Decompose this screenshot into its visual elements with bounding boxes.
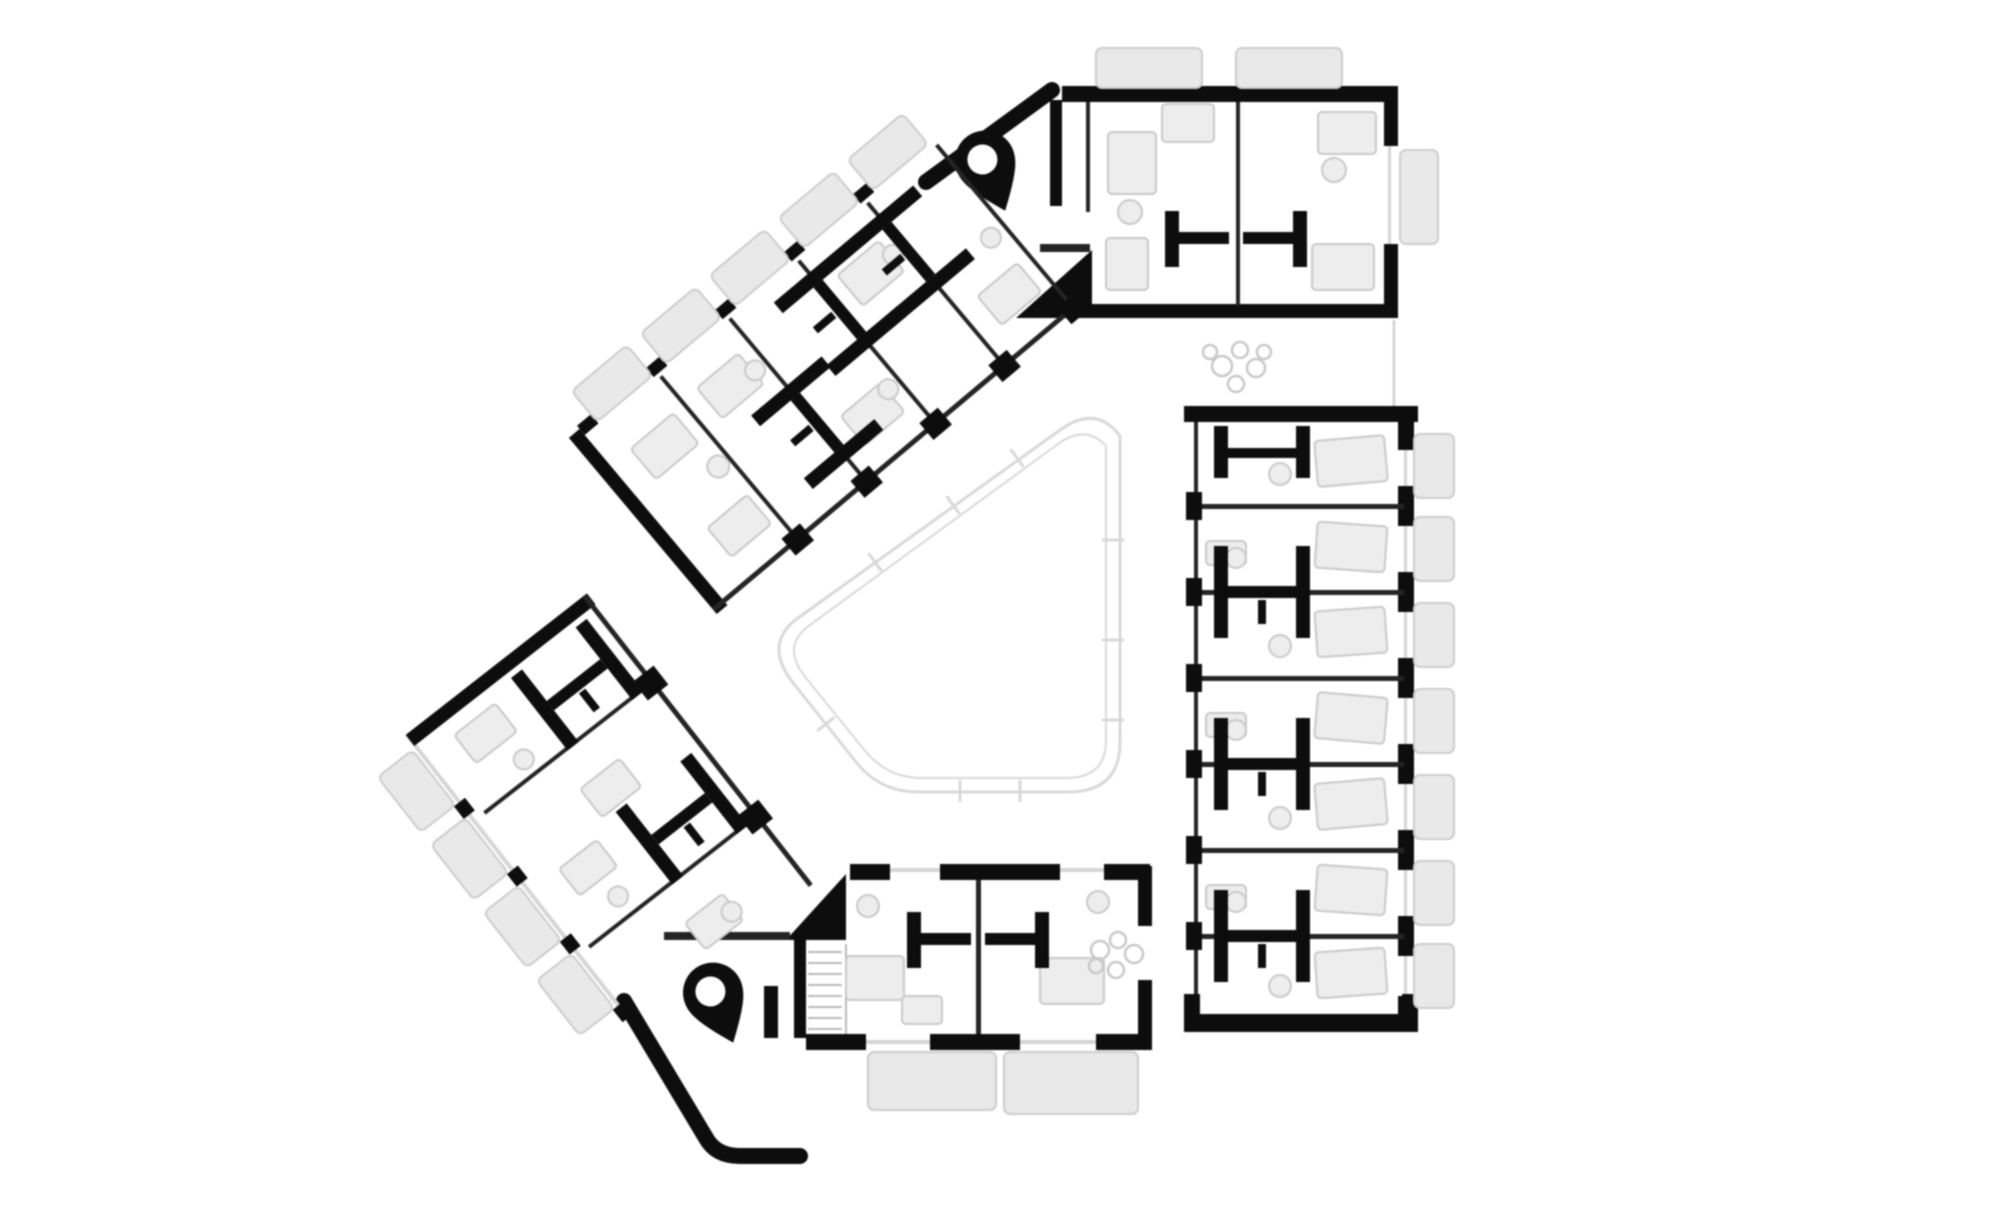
window-bay — [1236, 48, 1342, 88]
window-bay — [1400, 150, 1438, 244]
south-room-divider — [976, 880, 981, 1036]
window-bay — [778, 171, 859, 248]
furniture-item — [1314, 435, 1388, 487]
chair-symbol — [1226, 548, 1246, 568]
chair-symbol — [1226, 892, 1246, 912]
south-top-wall-b — [940, 864, 1060, 880]
bathroom-pod — [1214, 426, 1310, 478]
chair-symbol — [1269, 635, 1291, 657]
furniture-item — [846, 956, 904, 1000]
east-left-block-2 — [1186, 578, 1202, 606]
south-left-wall — [794, 938, 806, 1038]
south-bottom-wall-c — [1096, 1034, 1150, 1050]
east-left-block-1 — [1186, 492, 1202, 520]
furniture-item — [1314, 522, 1387, 573]
window-bay — [484, 886, 562, 968]
east-partition-3 — [1198, 676, 1404, 681]
pod-wall — [813, 312, 837, 334]
pod-wall — [547, 659, 608, 710]
pod-wall — [579, 689, 600, 713]
furniture-item — [580, 758, 642, 817]
ne-right-window-line — [1388, 146, 1391, 244]
furniture-item — [1314, 607, 1387, 658]
plant-symbol — [1125, 945, 1143, 963]
chair-symbol — [1118, 200, 1142, 224]
floor-plan-image: Upper floor plan — triangular residentia… — [0, 0, 2000, 1214]
east-left-block-4 — [1186, 750, 1202, 778]
pod-wall — [1214, 426, 1228, 478]
window-bay — [1414, 434, 1454, 498]
pod-wall — [1228, 448, 1296, 458]
pod-wall — [684, 823, 705, 847]
furniture-item — [902, 996, 942, 1024]
south-lobby-block — [764, 986, 778, 1038]
plant-symbol — [1108, 962, 1124, 978]
east-bottom-riser-left — [1184, 994, 1200, 1032]
chair-symbol — [510, 745, 538, 773]
furniture-item — [1314, 865, 1387, 916]
bathroom-pod — [616, 753, 748, 885]
pod-wall — [1214, 890, 1228, 982]
rail-post-tick — [869, 553, 882, 571]
window-bay — [1004, 1052, 1138, 1114]
plant-symbol — [1110, 932, 1126, 948]
east-bottom-wall — [1184, 1014, 1418, 1032]
furniture-item — [1040, 958, 1104, 1004]
furniture-item — [707, 495, 771, 558]
east-left-block-3 — [1186, 664, 1202, 692]
furniture-item — [1106, 238, 1148, 290]
pod-wall — [1228, 930, 1296, 942]
window-bay — [1096, 48, 1202, 88]
chair-symbol — [1269, 807, 1291, 829]
furniture-item — [1162, 104, 1214, 142]
pod-wall — [1296, 890, 1310, 982]
pod-wall — [790, 425, 814, 447]
window-bay — [1414, 775, 1454, 839]
rail-post-tick — [817, 717, 834, 731]
chair-symbol — [857, 895, 879, 917]
chair-symbol — [604, 882, 632, 910]
ne-bottom-wall — [1080, 304, 1398, 318]
ne-left-wall — [1086, 102, 1090, 212]
pod-wall — [921, 933, 971, 945]
window-bay — [847, 114, 928, 191]
chair-symbol — [1226, 720, 1246, 740]
pod-wall — [616, 803, 684, 884]
plant-symbol — [1091, 941, 1109, 959]
spiral-stair-symbol — [674, 954, 761, 1054]
ne-room-divider — [1236, 102, 1240, 306]
furniture-item — [1108, 132, 1156, 194]
courtyard — [779, 418, 1124, 802]
chair-symbol — [1269, 463, 1291, 485]
pod-wall — [907, 912, 921, 968]
east-left-block-6 — [1186, 922, 1202, 950]
window-bay — [640, 287, 721, 364]
east-left-block-5 — [1186, 836, 1202, 864]
plan-root-layer — [624, 48, 1454, 1156]
window-bay — [1414, 861, 1454, 925]
pod-wall — [651, 793, 712, 844]
window-bay — [1414, 944, 1454, 1008]
north-lobby-wall-h — [1040, 244, 1090, 252]
furniture-item — [1312, 244, 1374, 290]
east-top-wall — [1184, 406, 1418, 422]
south-top-wall-a — [850, 864, 890, 880]
pod-wall — [1258, 944, 1266, 968]
pod-wall — [511, 669, 579, 750]
window-bay — [1414, 689, 1454, 753]
courtyard-inner-rail — [794, 434, 1106, 778]
south-bottom-wall-a — [806, 1034, 866, 1050]
furniture-item — [630, 413, 699, 480]
window-bay — [431, 818, 509, 900]
southwest-wing — [368, 588, 820, 1054]
furniture-item — [1314, 778, 1388, 830]
plant-symbol — [1228, 376, 1244, 392]
chair-symbol — [1322, 158, 1346, 182]
window-bay — [572, 345, 653, 422]
north-lobby-wall-v — [1050, 100, 1062, 206]
pod-wall — [1296, 718, 1310, 810]
plant-symbol — [1232, 342, 1248, 358]
pod-wall — [791, 393, 844, 453]
south-bottom-wall-b — [930, 1034, 1020, 1050]
pod-wall — [1258, 600, 1266, 624]
furniture-item — [454, 703, 517, 763]
window-bay — [709, 229, 790, 306]
east-partition-5 — [1198, 848, 1404, 853]
pod-wall — [1296, 426, 1310, 478]
window-bay — [1414, 517, 1454, 581]
chair-symbol — [1269, 975, 1291, 997]
furniture-item — [1314, 948, 1387, 999]
furniture-item — [559, 840, 618, 896]
plant-symbol — [1212, 356, 1232, 376]
plant-symbol — [1203, 345, 1217, 359]
pod-wall — [1228, 586, 1296, 598]
east-partition-1 — [1198, 504, 1404, 509]
chair-symbol — [1087, 891, 1109, 913]
furniture-item — [1314, 692, 1388, 744]
pod-wall — [1296, 546, 1310, 638]
window-bay — [1414, 603, 1454, 667]
pod-wall — [1258, 772, 1266, 796]
floor-plan-canvas: Upper floor plan — triangular residentia… — [0, 0, 2000, 1214]
south-corner-wedge — [786, 874, 846, 940]
pod-wall — [1293, 211, 1307, 267]
pod-wall — [985, 933, 1035, 945]
east-right-block-top — [1398, 406, 1414, 450]
pod-wall — [1214, 546, 1228, 638]
stair-flight — [808, 952, 842, 1029]
pod-wall — [1035, 912, 1049, 968]
chair-symbol — [977, 224, 1005, 252]
pod-wall — [1228, 758, 1296, 770]
plant-symbol — [1247, 359, 1265, 377]
pod-wall — [1179, 232, 1229, 244]
window-bay — [537, 953, 615, 1035]
plant-symbol — [1257, 345, 1271, 359]
pod-wall — [1165, 211, 1179, 267]
pod-wall — [1243, 232, 1293, 244]
south-right-wall-top — [1138, 866, 1152, 926]
window-bay — [868, 1052, 996, 1110]
pod-wall — [1214, 718, 1228, 810]
furniture-item — [1318, 112, 1376, 154]
window-bay — [378, 750, 456, 832]
ne-right-wall-upper — [1384, 102, 1398, 146]
